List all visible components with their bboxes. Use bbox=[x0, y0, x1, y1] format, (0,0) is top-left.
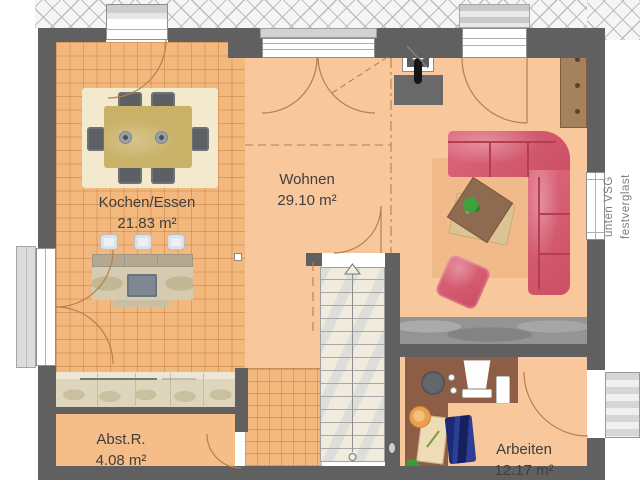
stone-wall-band bbox=[400, 317, 587, 344]
wall-right-lower bbox=[587, 438, 605, 466]
entrance-frame-line bbox=[107, 29, 167, 30]
stair-door-opening bbox=[322, 253, 385, 267]
staircase bbox=[320, 267, 385, 462]
sofa-cushion-line bbox=[538, 177, 540, 289]
window-glazing-line bbox=[595, 173, 596, 239]
entrance-step bbox=[107, 13, 167, 19]
desk-lamp-base bbox=[462, 389, 492, 398]
sofa-cushion-line bbox=[489, 141, 491, 177]
dining-table bbox=[104, 106, 192, 168]
blue-beanbag bbox=[445, 415, 477, 465]
sofa-cushion-line bbox=[527, 141, 529, 177]
window-dining bbox=[262, 38, 375, 58]
dining-chair bbox=[151, 166, 175, 184]
wall-top-living-left bbox=[375, 28, 462, 58]
cooktop bbox=[127, 274, 157, 297]
bar-stool bbox=[134, 234, 152, 250]
room-area: 29.10 m² bbox=[257, 190, 357, 211]
room-label-kochen-essen: Kochen/Essen 21.83 m² bbox=[77, 192, 217, 234]
bar-stool bbox=[100, 234, 118, 250]
counter-divider bbox=[157, 254, 158, 267]
room-name: Wohnen bbox=[257, 169, 357, 190]
window-sill bbox=[260, 28, 377, 38]
room-name: Arbeiten bbox=[474, 439, 574, 460]
dining-chair bbox=[118, 166, 142, 184]
basket bbox=[409, 406, 431, 428]
sofa-cushion-line bbox=[539, 253, 570, 255]
window-glazing-line bbox=[463, 45, 526, 46]
wall-kitchen-storage bbox=[38, 407, 235, 414]
annotation-line: festverglast bbox=[618, 136, 635, 278]
floor-plan: Kochen/Essen 21.83 m² Wohnen 29.10 m² Ab… bbox=[0, 0, 640, 480]
room-area: 12.17 m² bbox=[474, 460, 574, 480]
wall-stair-right bbox=[385, 253, 400, 466]
island-ledge bbox=[114, 300, 169, 307]
dining-chair bbox=[87, 127, 105, 151]
wall-pillar bbox=[228, 28, 262, 58]
window-glazing-line bbox=[45, 249, 46, 365]
stove-pipe bbox=[414, 58, 422, 84]
floor-hall-tiles bbox=[245, 368, 322, 467]
blind-box-line bbox=[26, 247, 27, 367]
bar-stool bbox=[167, 234, 185, 250]
table-decor bbox=[119, 131, 132, 144]
room-area: 21.83 m² bbox=[77, 213, 217, 234]
room-label-abstr: Abst.R. 4.08 m² bbox=[71, 429, 171, 471]
counter-divider bbox=[124, 254, 125, 267]
wall-left-upper bbox=[38, 28, 56, 248]
sofa-right-section bbox=[528, 170, 570, 295]
room-name: Kochen/Essen bbox=[77, 192, 217, 213]
kitchen-bar-counter bbox=[92, 254, 193, 267]
counter-divider bbox=[170, 373, 171, 406]
wall-top-kitchen-left bbox=[38, 28, 106, 42]
window-canopy bbox=[459, 4, 530, 28]
terrace-door-living bbox=[462, 28, 527, 58]
exterior-grate bbox=[605, 372, 640, 438]
room-label-arbeiten: Arbeiten 12.17 m² bbox=[474, 439, 574, 480]
entrance-step bbox=[107, 5, 167, 13]
printer bbox=[496, 376, 510, 404]
french-door-kitchen bbox=[36, 248, 56, 366]
sofa-cushion-line bbox=[448, 141, 556, 143]
chair-casters bbox=[448, 374, 455, 381]
window-annotation: unten VSG festverglast bbox=[601, 136, 637, 278]
counter-divider bbox=[203, 373, 204, 406]
outlet-symbol bbox=[389, 443, 395, 453]
window-glazing-line bbox=[263, 43, 374, 44]
office-chair bbox=[421, 371, 445, 395]
wall-hall-storage bbox=[235, 368, 248, 432]
annotation-line: unten VSG bbox=[601, 136, 618, 278]
wall-office-top bbox=[400, 344, 587, 357]
sofa-cushion-line bbox=[539, 213, 570, 215]
office-door-opening bbox=[587, 370, 605, 438]
plant bbox=[463, 197, 478, 212]
window-glazing-line bbox=[263, 49, 374, 50]
counter-divider bbox=[135, 373, 136, 406]
room-area: 4.08 m² bbox=[71, 450, 171, 471]
room-label-wohnen: Wohnen 29.10 m² bbox=[257, 169, 357, 211]
kitchen-counter bbox=[56, 372, 235, 407]
dining-chair bbox=[191, 127, 209, 151]
room-name: Abst.R. bbox=[71, 429, 171, 450]
wall-left-lower bbox=[38, 366, 56, 466]
wall-stair-stub bbox=[306, 253, 322, 266]
window-glazing-line bbox=[463, 38, 526, 39]
switch-symbol bbox=[234, 253, 242, 261]
counter-divider bbox=[97, 373, 98, 406]
table-decor bbox=[155, 131, 168, 144]
